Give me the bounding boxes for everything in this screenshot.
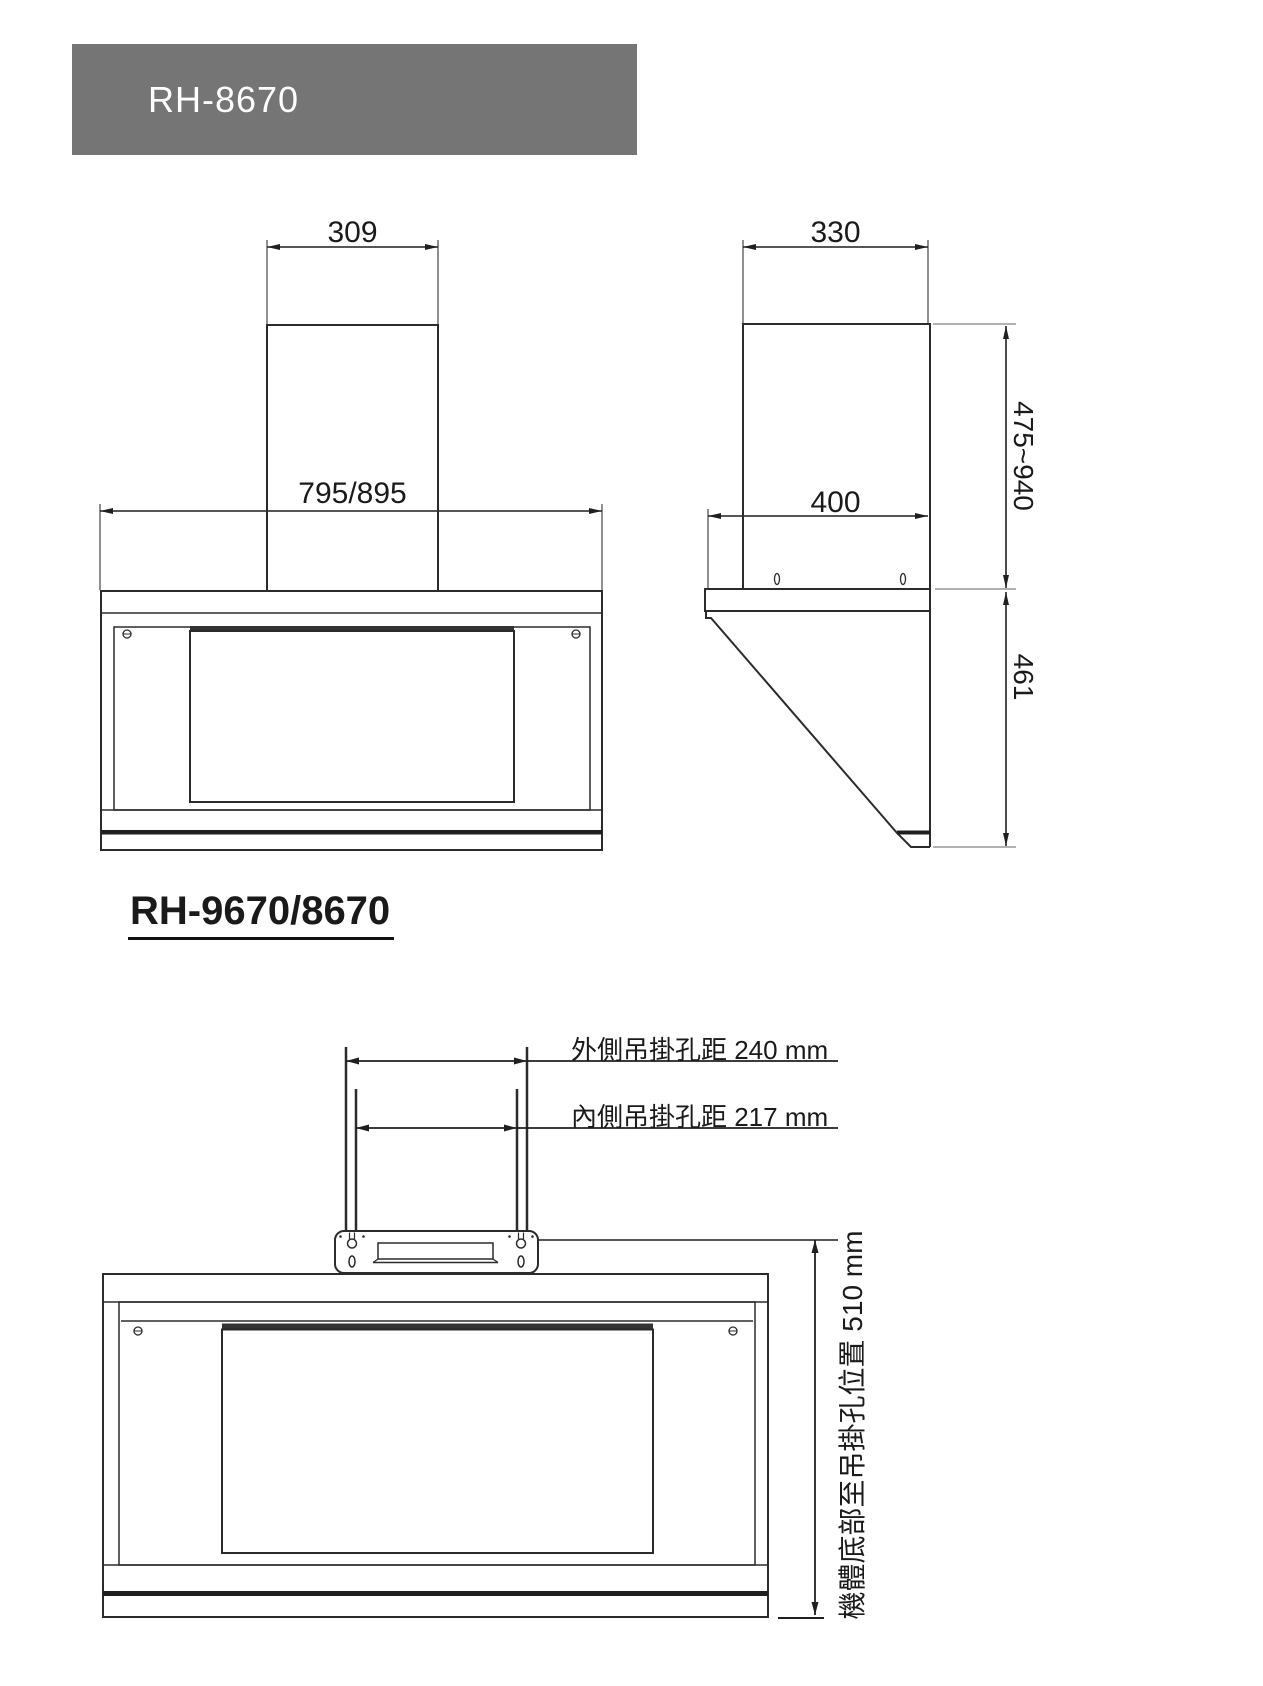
front-dimension-arrows <box>100 244 602 514</box>
section-model-label: RH-9670/8670 <box>128 889 394 940</box>
side-duct-depth-label: 330 <box>743 216 928 250</box>
slot-hole-icon <box>349 1256 355 1267</box>
slot-hole-icon <box>775 574 780 585</box>
mounting-dimension-lines <box>346 1061 838 1618</box>
side-body-height-label: 461 <box>1008 627 1038 727</box>
keyhole-icon <box>517 1239 526 1248</box>
front-extension-lines <box>100 240 602 590</box>
front-dimension-lines <box>100 247 602 511</box>
technical-drawing-canvas <box>0 0 1263 1686</box>
front-view-drawing <box>100 240 602 850</box>
keyhole-icon <box>348 1239 357 1248</box>
side-bottom-dark-strip <box>897 831 930 835</box>
side-dimension-lines <box>708 247 1006 846</box>
mounting-glass-panel <box>222 1330 653 1554</box>
side-top-plate-depth-label: 400 <box>743 486 928 520</box>
slot-hole-icon <box>901 574 906 585</box>
outer-hanging-hole-distance-label: 外側吊掛孔距 240 mm <box>571 1030 828 1067</box>
front-duct-outline <box>267 325 438 591</box>
body-bottom-to-hole-position-label: 機體底部至吊掛孔位置 510 mm <box>837 1225 869 1625</box>
side-extension-lines <box>708 240 928 589</box>
hanger-rods <box>346 1047 527 1231</box>
inner-hanging-hole-distance-label: 內側吊掛孔距 217 mm <box>571 1097 828 1134</box>
page: RH-8670 <box>0 0 1263 1686</box>
side-top-plate <box>705 589 930 611</box>
mounting-inner-panel <box>119 1302 755 1565</box>
bracket-right-keyhole <box>508 1233 534 1268</box>
front-body-width-label: 795/895 <box>267 477 438 511</box>
front-bottom-dark-strip <box>101 830 602 835</box>
side-body-profile <box>706 611 930 847</box>
slot-hole-icon <box>518 1256 524 1267</box>
front-glass-panel <box>190 631 514 802</box>
mounting-bottom-dark-strip <box>103 1591 768 1596</box>
side-dimension-arrows <box>708 244 1009 846</box>
mounting-dimension-arrows <box>346 1058 819 1616</box>
side-view-drawing <box>705 240 1016 847</box>
bracket-left-keyhole <box>339 1233 365 1268</box>
side-duct-height-range-label: 475~940 <box>1008 371 1038 541</box>
side-slot-holes <box>775 574 906 585</box>
mounting-bracket-plate <box>335 1231 538 1273</box>
front-inner-panel <box>114 627 590 810</box>
front-duct-width-label: 309 <box>267 216 438 250</box>
bracket-center-handle <box>373 1243 498 1263</box>
side-duct-outline <box>743 324 930 847</box>
side-gray-extension-lines <box>933 324 1016 847</box>
